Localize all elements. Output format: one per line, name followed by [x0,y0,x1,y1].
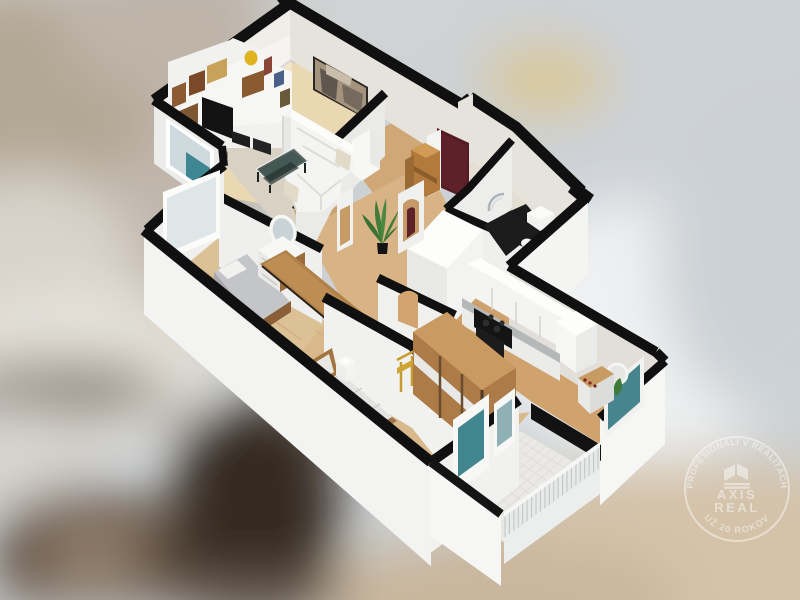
svg-text:REAL: REAL [714,500,759,515]
